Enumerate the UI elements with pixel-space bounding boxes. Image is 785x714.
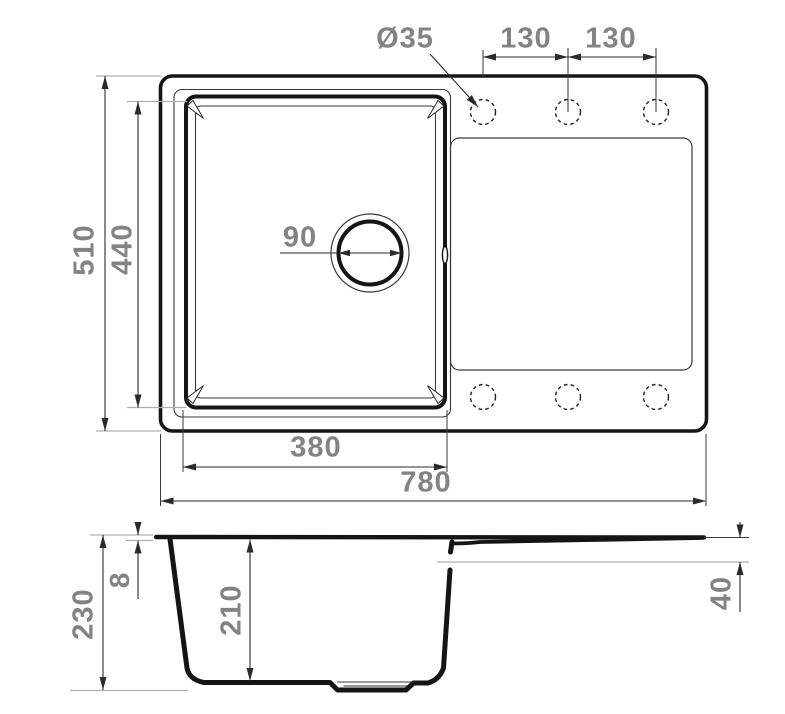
top-view <box>161 76 707 431</box>
dim-bowl-width: 380 <box>290 434 341 463</box>
dim-overall-width: 780 <box>400 469 451 498</box>
faucet-hole <box>556 385 581 410</box>
sink-outer-edge <box>161 76 707 431</box>
drawing-linework <box>0 0 785 714</box>
dim-bowl-inner-depth: 210 <box>218 584 247 635</box>
sink-technical-drawing: Ø35 130 130 510 440 90 380 780 230 8 210… <box>0 0 785 714</box>
dim-overall-depth: 510 <box>71 224 100 275</box>
side-rim-line <box>156 537 704 538</box>
faucet-hole <box>644 385 669 410</box>
dim-drain-diameter: 90 <box>283 224 317 253</box>
dim-faucet-spacing-left: 130 <box>500 25 551 54</box>
overflow-slot <box>442 247 447 264</box>
dim-bowl-depth: 440 <box>109 223 138 274</box>
drainboard-outline <box>451 138 693 370</box>
dim-faucet-spacing-right: 130 <box>585 25 636 54</box>
drain-fitting-plate <box>338 682 414 686</box>
dim-faucet-hole-diameter: Ø35 <box>376 25 434 54</box>
faucet-hole <box>471 385 496 410</box>
dim-overall-height: 230 <box>70 588 99 639</box>
dim-rim-thickness: 8 <box>106 572 134 589</box>
faucet-holes <box>471 100 669 410</box>
dim-drainboard-edge-height: 40 <box>708 576 737 610</box>
faucet-diameter-leader <box>430 54 478 107</box>
bowl-section-profile <box>170 539 450 690</box>
